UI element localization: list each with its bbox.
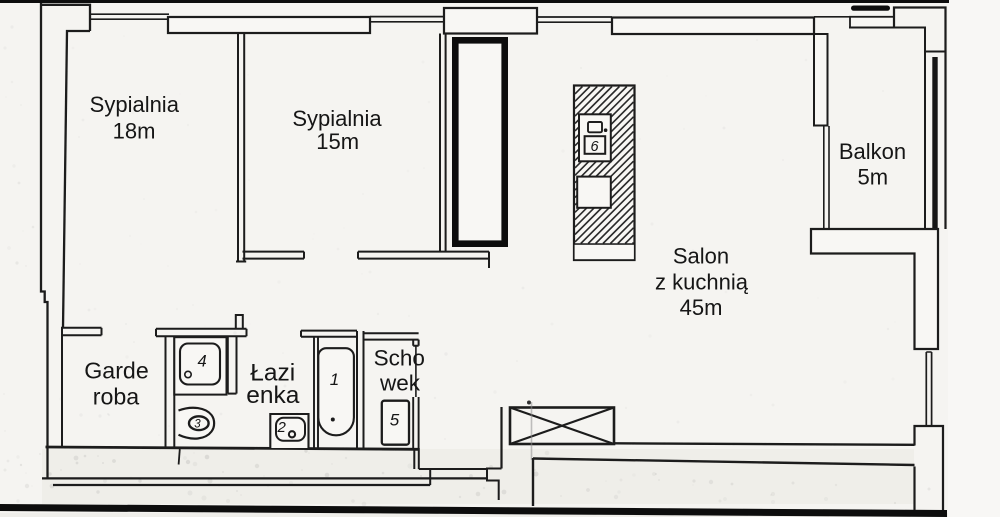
svg-text:1: 1 <box>330 370 339 389</box>
svg-text:4: 4 <box>198 353 207 371</box>
svg-text:5: 5 <box>390 411 400 430</box>
svg-text:18m: 18m <box>113 119 156 144</box>
svg-text:2: 2 <box>277 419 287 436</box>
svg-text:Sypialnia: Sypialnia <box>292 106 382 131</box>
svg-text:Sypialnia: Sypialnia <box>90 92 180 117</box>
svg-text:3: 3 <box>194 419 201 431</box>
svg-text:enka: enka <box>246 382 300 409</box>
svg-text:5m: 5m <box>858 164 889 189</box>
svg-text:15m: 15m <box>316 129 359 154</box>
svg-text:roba: roba <box>93 383 140 409</box>
svg-text:Garde: Garde <box>84 358 148 384</box>
svg-text:z kuchnią: z kuchnią <box>655 269 749 294</box>
svg-text:Balkon: Balkon <box>839 139 906 164</box>
svg-text:45m: 45m <box>680 295 723 320</box>
svg-text:wek: wek <box>379 371 421 396</box>
svg-text:Scho: Scho <box>374 346 425 371</box>
svg-text:6: 6 <box>591 139 600 155</box>
svg-text:Salon: Salon <box>673 244 729 269</box>
